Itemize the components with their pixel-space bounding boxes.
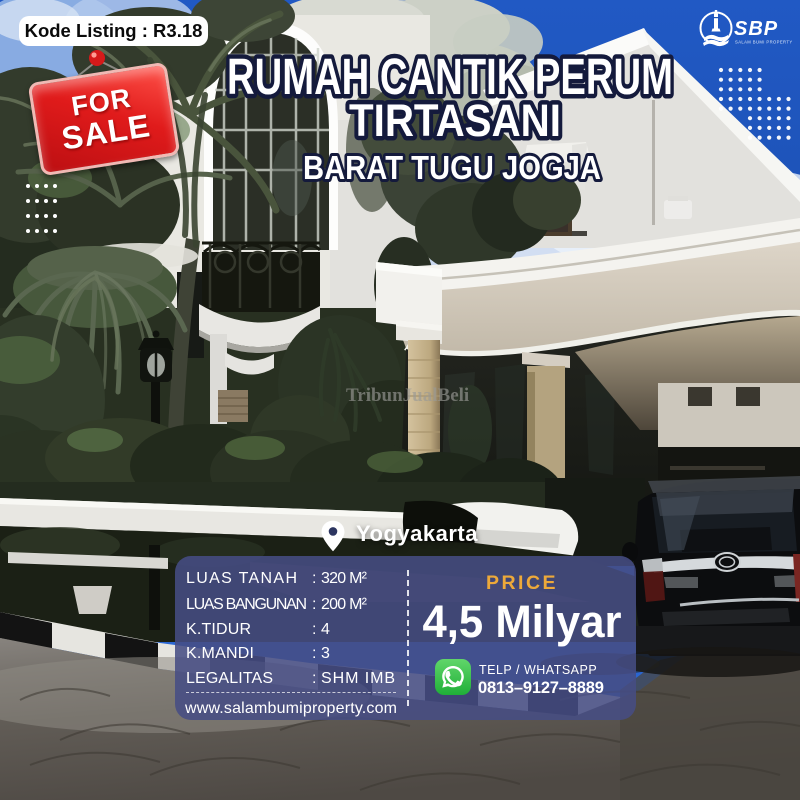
svg-text:www.salambumiproperty.com: www.salambumiproperty.com xyxy=(184,700,397,717)
svg-text:200 M²: 200 M² xyxy=(321,596,368,613)
svg-text:320 M²: 320 M² xyxy=(321,570,368,587)
svg-text:4: 4 xyxy=(321,621,330,638)
svg-text::: : xyxy=(312,596,316,613)
svg-text:SALAM BUMI PROPERTY: SALAM BUMI PROPERTY xyxy=(735,40,793,45)
svg-text:LUAS TANAH: LUAS TANAH xyxy=(186,570,297,587)
svg-text::: : xyxy=(312,670,316,687)
svg-text::: : xyxy=(312,570,316,587)
svg-text:SBP: SBP xyxy=(734,18,778,40)
svg-text::: : xyxy=(312,645,316,662)
svg-text:K.MANDI: K.MANDI xyxy=(186,645,254,662)
svg-text:K.TIDUR: K.TIDUR xyxy=(186,621,251,638)
svg-text:TribunJualBeli: TribunJualBeli xyxy=(346,385,469,406)
svg-text:LEGALITAS: LEGALITAS xyxy=(186,670,273,687)
svg-text:SHM IMB: SHM IMB xyxy=(321,670,395,687)
svg-text:LUAS BANGUNAN: LUAS BANGUNAN xyxy=(186,596,307,613)
svg-text:BARAT TUGU JOGJA: BARAT TUGU JOGJA xyxy=(303,149,601,186)
svg-text:3: 3 xyxy=(321,645,330,662)
svg-text::: : xyxy=(312,621,316,638)
svg-text:TIRTASANI: TIRTASANI xyxy=(349,95,561,146)
